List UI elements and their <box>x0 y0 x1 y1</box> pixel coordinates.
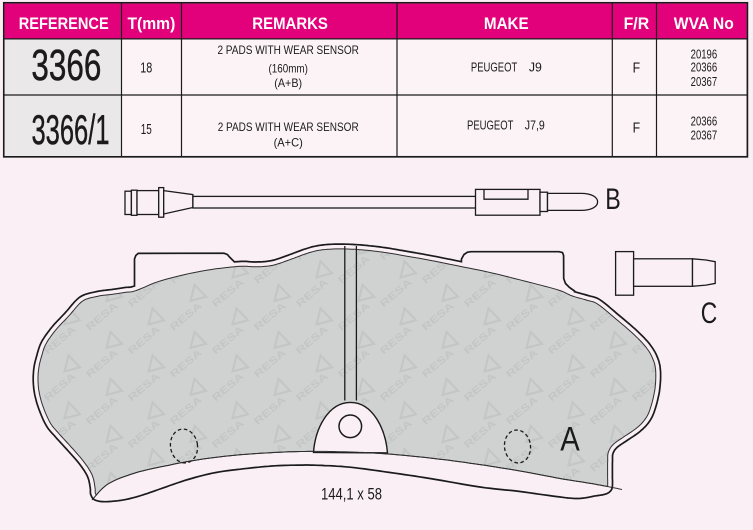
svg-text:MAKE: MAKE <box>484 15 529 33</box>
svg-text:B: B <box>605 183 621 216</box>
svg-text:20366: 20366 <box>691 59 718 74</box>
svg-text:2 PADS WITH WEAR SENSOR: 2 PADS WITH WEAR SENSOR <box>217 43 359 57</box>
svg-text:A: A <box>560 421 580 459</box>
svg-text:PEUGEOT: PEUGEOT <box>471 59 517 74</box>
svg-text:20367: 20367 <box>691 74 718 89</box>
svg-text:WVA No: WVA No <box>674 15 734 33</box>
svg-text:F: F <box>633 61 641 77</box>
svg-text:F: F <box>633 120 641 136</box>
svg-text:(A+C): (A+C) <box>274 135 303 149</box>
svg-text:T(mm): T(mm) <box>128 15 176 33</box>
svg-text:(160mm): (160mm) <box>269 62 308 76</box>
svg-text:15: 15 <box>141 121 152 138</box>
svg-text:J7,9: J7,9 <box>525 118 545 133</box>
svg-text:3366/1: 3366/1 <box>32 106 110 153</box>
svg-text:F/R: F/R <box>624 15 650 33</box>
svg-text:20366: 20366 <box>691 114 718 129</box>
svg-text:(A+B): (A+B) <box>274 76 302 90</box>
svg-text:PEUGEOT: PEUGEOT <box>467 118 513 133</box>
svg-text:18: 18 <box>140 60 152 77</box>
svg-text:144,1 x 58: 144,1 x 58 <box>321 485 382 504</box>
svg-text:2 PADS WITH WEAR SENSOR: 2 PADS WITH WEAR SENSOR <box>218 120 359 134</box>
svg-text:C: C <box>701 297 718 330</box>
svg-text:3366: 3366 <box>31 42 101 90</box>
svg-text:20367: 20367 <box>691 127 718 142</box>
svg-text:J9: J9 <box>529 59 542 74</box>
svg-text:REFERENCE: REFERENCE <box>19 15 109 33</box>
svg-text:REMARKS: REMARKS <box>252 15 328 33</box>
